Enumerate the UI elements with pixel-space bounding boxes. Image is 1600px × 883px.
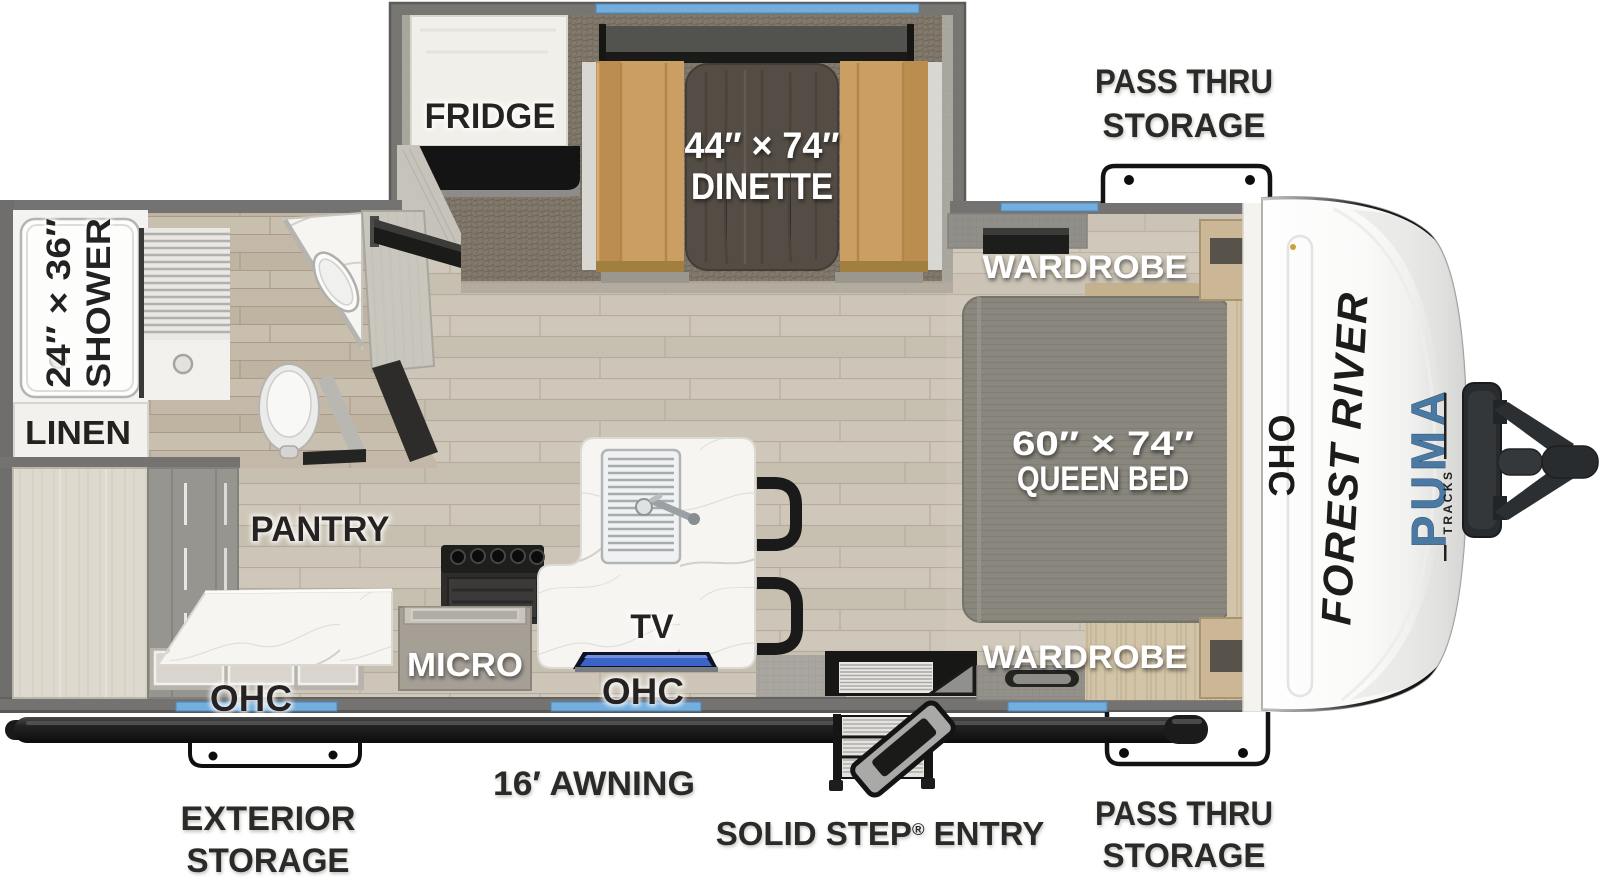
svg-text:QUEEN BED: QUEEN BED: [1017, 460, 1189, 498]
svg-text:SOLID STEP® ENTRY: SOLID STEP® ENTRY: [716, 815, 1045, 852]
svg-text:STORAGE: STORAGE: [1103, 837, 1266, 875]
svg-text:TRACKS: TRACKS: [1441, 470, 1455, 535]
svg-text:44″ × 74″: 44″ × 74″: [685, 125, 840, 166]
svg-text:EXTERIOR: EXTERIOR: [181, 800, 356, 838]
svg-text:OHC: OHC: [602, 671, 684, 712]
svg-text:60″ × 74″: 60″ × 74″: [1012, 425, 1194, 463]
svg-text:MICRO: MICRO: [407, 646, 523, 683]
svg-text:SHOWER: SHOWER: [80, 218, 118, 388]
svg-text:OHC: OHC: [210, 678, 292, 719]
svg-text:STORAGE: STORAGE: [187, 842, 350, 880]
svg-text:WARDROBE: WARDROBE: [983, 249, 1188, 285]
svg-text:PANTRY: PANTRY: [251, 510, 390, 549]
svg-text:OHC: OHC: [1261, 415, 1302, 498]
svg-text:PASS THRU: PASS THRU: [1095, 795, 1273, 833]
svg-text:DINETTE: DINETTE: [691, 166, 833, 207]
svg-text:TV: TV: [630, 608, 674, 646]
svg-text:PASS THRU: PASS THRU: [1095, 63, 1273, 101]
svg-text:STORAGE: STORAGE: [1103, 107, 1266, 145]
svg-text:16′ AWNING: 16′ AWNING: [493, 765, 695, 803]
svg-text:WARDROBE: WARDROBE: [983, 639, 1188, 675]
svg-text:FRIDGE: FRIDGE: [425, 97, 556, 136]
svg-text:LINEN: LINEN: [25, 414, 131, 451]
svg-text:24″ × 36″: 24″ × 36″: [40, 218, 78, 388]
